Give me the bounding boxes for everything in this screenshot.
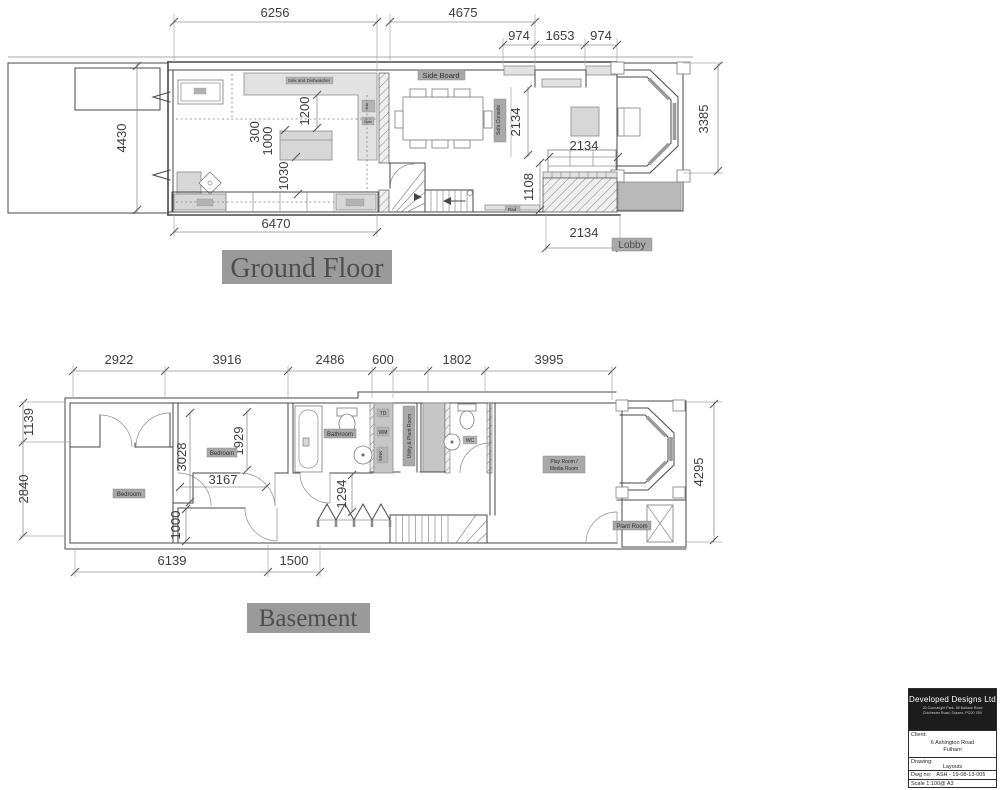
- dim-1139: 1139: [21, 408, 36, 436]
- coffee-table: [571, 107, 599, 136]
- desk-chair: [199, 172, 221, 194]
- sofa-console-label: Sofa Console: [496, 105, 502, 135]
- dim-1200: 1200: [297, 97, 312, 126]
- basement-stairs: [318, 504, 487, 543]
- title-block-header: Developed Designs Ltd 30 Connaught Park,…: [909, 689, 996, 730]
- hob-label: Hob: [365, 103, 369, 110]
- plan-drawing: 6256 4675 974 1653 974 4430 6470 300 100…: [0, 0, 1000, 790]
- wc-cistern: [458, 404, 476, 411]
- dim-2134-console: 2134: [508, 108, 523, 137]
- company-name: Developed Designs Ltd: [909, 695, 996, 704]
- dim-6139: 6139: [158, 553, 187, 568]
- dim-6256: 6256: [261, 5, 290, 20]
- bathroom-label: Bathroom: [327, 432, 353, 438]
- basement-plan: 2922 3916 2486 600 1802 3995 1139 2840 3…: [16, 352, 722, 633]
- client-line2: Fulham: [909, 747, 996, 754]
- dim-4430: 4430: [114, 124, 129, 153]
- lobby-label: Lobby: [618, 240, 645, 251]
- td-label: TD: [380, 411, 387, 417]
- dim-1030: 1030: [276, 162, 291, 191]
- dim-2134-sofa: 2134: [570, 138, 599, 153]
- sofa: [548, 150, 616, 172]
- dining-table: [403, 97, 483, 140]
- lightwell: [543, 172, 617, 212]
- worktop-label: Sink and Dishwasher: [288, 78, 331, 83]
- dim-3995: 3995: [535, 352, 564, 367]
- dim-1294: 1294: [334, 480, 349, 509]
- dwg-no-label: Dwg no:: [911, 772, 931, 778]
- scale-row: Scale 1:100@ A3: [909, 779, 996, 788]
- wc-label: WC: [466, 438, 475, 444]
- dim-3167: 3167: [209, 472, 238, 487]
- drawing-label: Drawing:: [911, 759, 933, 765]
- wc-toilet: [460, 411, 474, 429]
- dim-2840: 2840: [16, 475, 31, 504]
- playroom-label-1: Play Room /: [550, 459, 578, 465]
- bedroom-mid-label: Bedroom: [210, 451, 234, 457]
- dim-1802: 1802: [443, 352, 472, 367]
- dim-974-left: 974: [508, 28, 530, 43]
- dim-3028: 3028: [174, 443, 189, 472]
- side-board-label: Side Board: [422, 71, 459, 80]
- front-steps: [618, 182, 681, 210]
- title-block: Developed Designs Ltd 30 Connaught Park,…: [908, 688, 997, 788]
- dim-6470: 6470: [262, 216, 291, 231]
- scale-value: Scale 1:100@ A3: [911, 781, 954, 787]
- desk: [177, 172, 201, 194]
- wm-label: WM: [379, 430, 388, 436]
- dim-3916: 3916: [213, 352, 242, 367]
- plantroom-label: Plant Room: [616, 524, 647, 530]
- dim-1500: 1500: [280, 553, 309, 568]
- dim-2922: 2922: [105, 352, 134, 367]
- oven-label: Oven: [364, 120, 373, 124]
- ground-floor-stairs: [389, 163, 540, 212]
- client-row: Client: 6 Ashington Road Fulham: [909, 730, 996, 757]
- dim-4295: 4295: [691, 458, 706, 487]
- sink-label: SINK: [378, 451, 383, 462]
- dim-1000-basement: 1000: [168, 511, 183, 540]
- dim-1108: 1108: [521, 173, 536, 201]
- utility-label: Utility & Plant Room: [407, 414, 413, 458]
- dim-1000: 1000: [260, 127, 275, 156]
- bedroom-left-label: Bedroom: [117, 492, 141, 498]
- dwg-no-value: ASH - 19-08-13-005: [936, 772, 985, 778]
- ground-floor-plan: 6256 4675 974 1653 974 4430 6470 300 100…: [8, 5, 723, 284]
- kitchen-island: [280, 131, 332, 160]
- armchair: [618, 108, 640, 136]
- ground-floor-bay-window: [611, 62, 690, 211]
- dwg-no-row: Dwg no:ASH - 19-08-13-005: [909, 770, 996, 779]
- stair-arrow-icon: [443, 197, 451, 205]
- dim-1653: 1653: [546, 28, 575, 43]
- dim-974-right: 974: [590, 28, 612, 43]
- dim-600: 600: [372, 352, 394, 367]
- floor-plan-sheet: 6256 4675 974 1653 974 4430 6470 300 100…: [0, 0, 1000, 790]
- drawing-row: Drawing: Layouts: [909, 757, 996, 770]
- ground-floor-title: Ground Floor: [230, 253, 384, 284]
- dim-2486: 2486: [316, 352, 345, 367]
- dim-2134-terrace: 2134: [570, 225, 599, 240]
- client-label: Client:: [911, 732, 927, 738]
- basement-title: Basement: [259, 605, 358, 632]
- playroom-label-2: Media Room: [550, 466, 578, 472]
- stair-arrow-icon: [414, 193, 422, 201]
- dim-4675: 4675: [449, 5, 478, 20]
- rad-label: Rad: [508, 207, 517, 212]
- kitchen-fittings: [172, 73, 378, 212]
- company-address-line2: Chichester Road, Sussex, PO20 7BV: [909, 711, 996, 716]
- dim-3385: 3385: [696, 105, 711, 134]
